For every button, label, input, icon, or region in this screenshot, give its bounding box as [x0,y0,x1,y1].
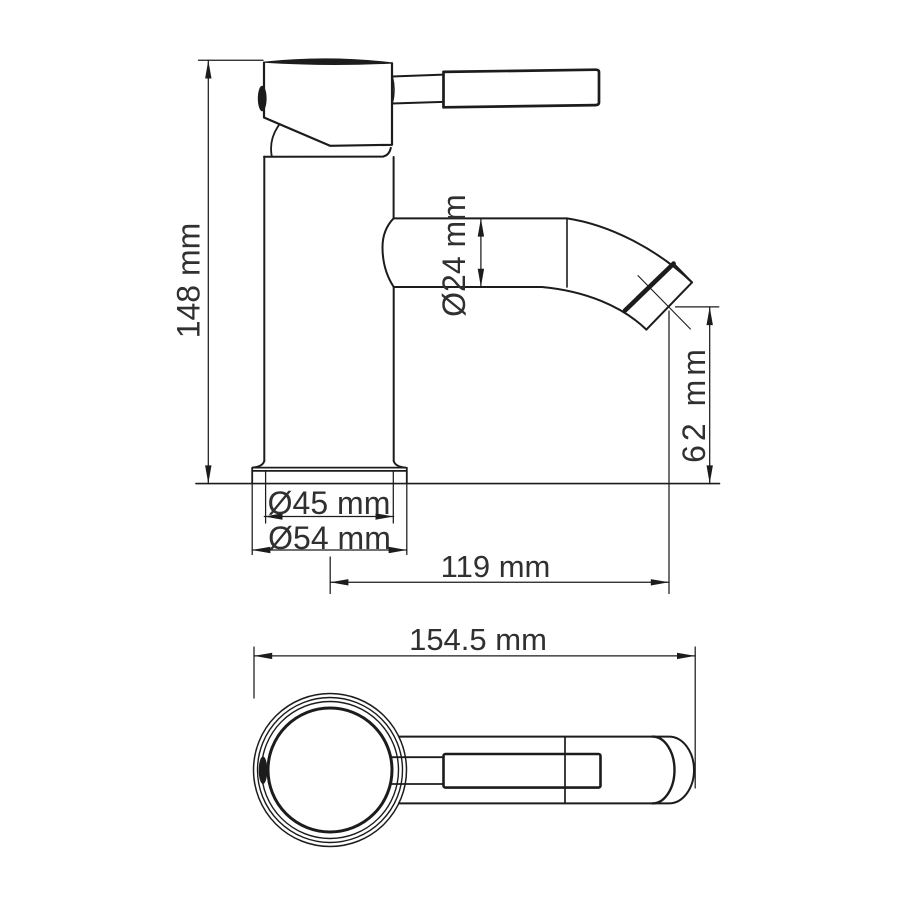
svg-text:119 mm: 119 mm [441,549,551,584]
svg-text:154.5 mm: 154.5 mm [409,622,547,657]
svg-text:Ø24 mm: Ø24 mm [436,194,472,317]
svg-text:Ø54 mm: Ø54 mm [268,520,391,556]
svg-text:148 mm: 148 mm [171,223,207,339]
svg-text:Ø45 mm: Ø45 mm [268,485,391,521]
svg-text:62 mm: 62 mm [676,345,712,463]
